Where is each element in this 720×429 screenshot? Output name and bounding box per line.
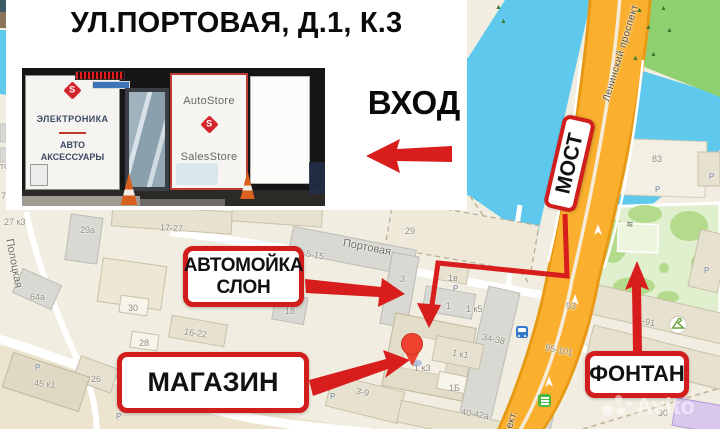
banner-accessories-label: АКСЕССУАРЫ bbox=[26, 152, 119, 162]
callout-fountain: ФОНТАН bbox=[585, 351, 689, 398]
watermark-dot bbox=[602, 405, 613, 416]
callout-carwash: АВТОМОЙКА СЛОН bbox=[183, 246, 304, 307]
watermark-dot bbox=[615, 395, 622, 402]
parking-icon: P bbox=[453, 285, 458, 293]
autostore-label: AutoStore bbox=[172, 95, 246, 107]
left-banner: S ЭЛЕКТРОНИКА АВТО АКСЕССУАРЫ bbox=[25, 75, 120, 190]
screenshot-root: Портовая Полоцкая Ленинский проспект ект… bbox=[0, 0, 720, 429]
white-door bbox=[250, 76, 310, 184]
entrance-label: ВХОД bbox=[364, 84, 464, 122]
glass-door bbox=[125, 88, 169, 191]
parking-icon: P bbox=[35, 364, 40, 372]
parking-icon: P bbox=[704, 267, 709, 275]
shop-poi-icon bbox=[538, 394, 551, 407]
store-logo-icon: S bbox=[63, 81, 81, 99]
led-ticker bbox=[75, 71, 125, 80]
callout-shop: МАГАЗИН bbox=[117, 352, 309, 413]
banner-electronics-label: ЭЛЕКТРОНИКА bbox=[26, 114, 119, 124]
center-banner: AutoStore S SalesStore bbox=[170, 73, 248, 190]
fountain-icon: ≋ bbox=[626, 220, 634, 229]
watermark-brand: Avito bbox=[636, 393, 695, 420]
salesstore-label: SalesStore bbox=[172, 151, 246, 163]
parking-icon: P bbox=[330, 393, 335, 401]
page-title: УЛ.ПОРТОВАЯ, Д.1, К.3 bbox=[6, 7, 467, 40]
watermark-dot bbox=[617, 407, 625, 415]
storefront-photo: S ЭЛЕКТРОНИКА АВТО АКСЕССУАРЫ AutoStore … bbox=[22, 68, 325, 206]
hanger-icon bbox=[670, 317, 686, 333]
parking-icon: P bbox=[709, 173, 714, 181]
watermark-dot bbox=[627, 401, 632, 406]
avito-watermark: Avito bbox=[598, 392, 720, 424]
bus-stop-icon bbox=[516, 326, 528, 338]
banner-auto-label: АВТО bbox=[26, 140, 119, 150]
info-panel: УЛ.ПОРТОВАЯ, Д.1, К.3 ВХОД S ЭЛЕКТРОНИКА… bbox=[6, 0, 467, 210]
parking-icon: P bbox=[116, 413, 121, 421]
store-logo-icon: S bbox=[200, 115, 218, 133]
parking-icon: P bbox=[655, 186, 660, 194]
